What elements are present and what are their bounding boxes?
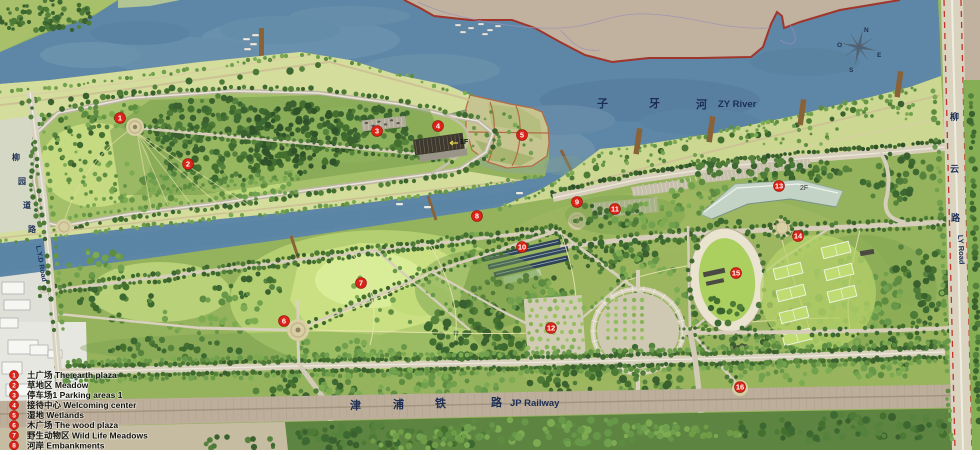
svg-text:E: E xyxy=(877,52,882,59)
svg-text:4: 4 xyxy=(12,402,16,409)
svg-text:7: 7 xyxy=(359,279,363,288)
svg-text:9: 9 xyxy=(575,198,579,207)
svg-text:1: 1 xyxy=(12,372,16,379)
svg-text:铁: 铁 xyxy=(435,396,446,410)
svg-text:子: 子 xyxy=(597,97,608,110)
svg-text:柳: 柳 xyxy=(12,152,20,162)
svg-text:园: 园 xyxy=(18,177,26,186)
svg-text:6: 6 xyxy=(12,423,16,430)
svg-text:津: 津 xyxy=(350,398,361,412)
svg-text:16: 16 xyxy=(736,383,744,392)
svg-text:N: N xyxy=(864,27,869,34)
svg-text:木广场 The wood plaza: 木广场 The wood plaza xyxy=(26,420,118,430)
svg-text:3: 3 xyxy=(375,127,379,136)
svg-text:牙: 牙 xyxy=(649,97,660,110)
svg-text:8: 8 xyxy=(475,212,479,221)
svg-text:14: 14 xyxy=(794,232,803,241)
svg-text:5: 5 xyxy=(520,131,524,140)
svg-text:路: 路 xyxy=(951,212,961,223)
svg-text:10: 10 xyxy=(518,243,526,252)
svg-text:柳: 柳 xyxy=(950,111,959,122)
svg-text:11: 11 xyxy=(611,205,619,214)
svg-text:浦: 浦 xyxy=(393,397,404,411)
svg-text:7: 7 xyxy=(12,433,16,440)
svg-text:1: 1 xyxy=(118,114,122,123)
svg-text:8: 8 xyxy=(12,443,16,450)
svg-text:13: 13 xyxy=(775,182,783,191)
svg-text:S: S xyxy=(849,67,854,74)
svg-text:6: 6 xyxy=(282,317,286,326)
svg-text:ZY River: ZY River xyxy=(718,99,757,110)
svg-text:湿地 Wetlands: 湿地 Wetlands xyxy=(27,410,84,420)
svg-text:云: 云 xyxy=(950,164,959,174)
svg-text:2F: 2F xyxy=(800,185,808,192)
svg-text:接待中心 Welcoming center: 接待中心 Welcoming center xyxy=(27,400,137,410)
svg-text:3: 3 xyxy=(12,392,16,399)
svg-text:路: 路 xyxy=(491,395,503,409)
svg-text:JP Railway: JP Railway xyxy=(510,398,560,409)
svg-text:野生动物区 Wild Life Meadows: 野生动物区 Wild Life Meadows xyxy=(27,430,148,440)
svg-text:河: 河 xyxy=(696,97,707,111)
svg-text:LY Road: LY Road xyxy=(956,235,967,265)
svg-text:5: 5 xyxy=(12,413,16,420)
svg-text:O: O xyxy=(837,42,842,49)
svg-text:道: 道 xyxy=(23,200,31,210)
svg-text:河岸 Embankments: 河岸 Embankments xyxy=(27,440,105,450)
svg-text:15: 15 xyxy=(732,269,740,278)
svg-text:12: 12 xyxy=(547,324,555,333)
svg-text:土广场 The earth plaza: 土广场 The earth plaza xyxy=(27,370,117,380)
svg-text:3F: 3F xyxy=(460,139,469,146)
svg-text:路: 路 xyxy=(28,224,37,234)
svg-text:停车场1 Parking areas 1: 停车场1 Parking areas 1 xyxy=(27,390,123,400)
svg-text:草地区 Meadow: 草地区 Meadow xyxy=(27,380,89,390)
svg-text:2: 2 xyxy=(186,160,190,169)
svg-text:2: 2 xyxy=(12,382,16,389)
